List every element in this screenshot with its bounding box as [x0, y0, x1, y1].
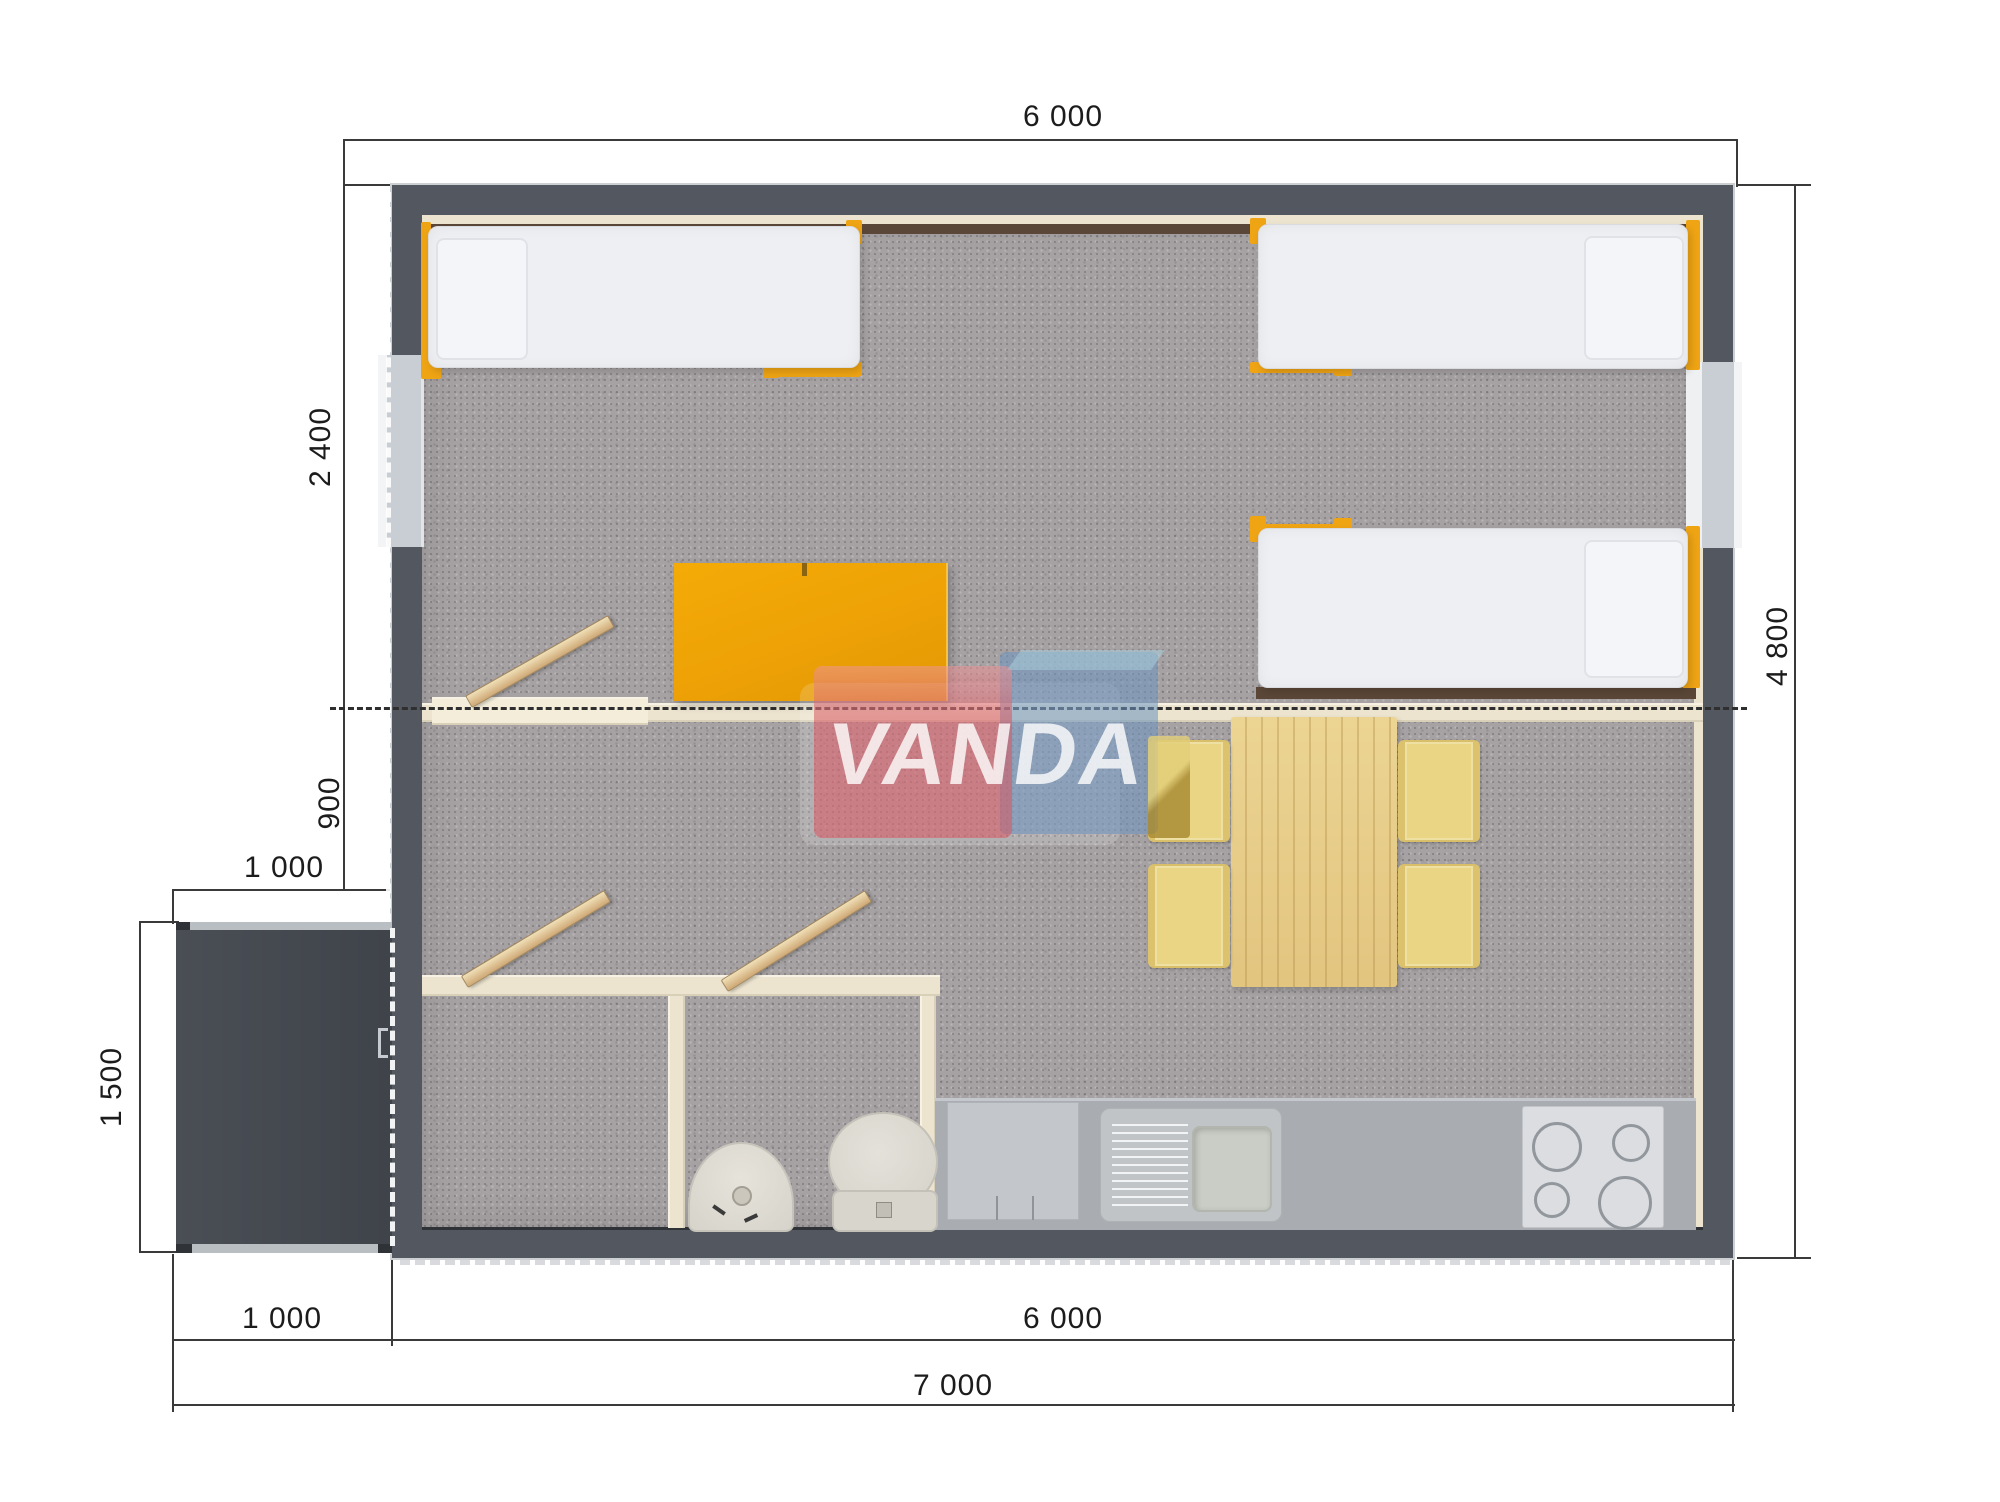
- dim-label-house-depth: 4 800: [1761, 606, 1795, 686]
- dim-ext-bottom-1733: [1732, 1260, 1734, 1412]
- watermark-blue-bevel: [1007, 650, 1165, 670]
- dim-ext-4800-top: [1737, 184, 1811, 186]
- kitchen-appliance-seam-2: [1032, 1196, 1034, 1220]
- dim-ext-porch-left: [172, 889, 174, 924]
- bed2-pillow: [1584, 236, 1684, 360]
- stove-burner-top-right: [1612, 1124, 1650, 1162]
- window-left: [387, 355, 424, 547]
- kitchen-appliance-seam-1: [996, 1196, 998, 1220]
- porch-step-bottom: [192, 1244, 378, 1253]
- bath-divider-wall: [668, 996, 685, 1228]
- bed3-frame-right: [1686, 526, 1700, 686]
- bed1-pillow: [436, 238, 528, 360]
- porch-step-bottom-cap-left: [176, 1244, 192, 1253]
- porch-deck: [176, 922, 392, 1252]
- dim-label-house-width-bottom: 6 000: [1023, 1302, 1103, 1336]
- bed2-frame-right: [1686, 220, 1700, 370]
- entrance-door-dashed: [390, 928, 395, 1246]
- entrance-door-handle: [378, 1028, 388, 1058]
- dim-line-1500: [139, 921, 141, 1253]
- dim-ext-top-right: [1736, 139, 1738, 187]
- dim-line-top: [344, 139, 1737, 141]
- porch-step-top: [190, 922, 392, 930]
- dim-line-1000-left: [172, 889, 396, 891]
- dining-table: [1231, 717, 1397, 987]
- dim-tick-1500-bottom: [139, 1251, 179, 1253]
- washbasin-faucet: [732, 1186, 752, 1206]
- stove-burner-bottom-right: [1598, 1176, 1652, 1230]
- dim-label-hall-depth: 900: [313, 776, 347, 829]
- bath-partition-wall: [422, 975, 940, 996]
- dim-line-4800: [1794, 184, 1796, 1259]
- bed3-pillow: [1584, 540, 1684, 678]
- dim-label-porch-width-bottom: 1 000: [242, 1302, 322, 1336]
- middle-wall-door-pocket: [432, 697, 648, 725]
- toilet-flush-button: [876, 1202, 892, 1218]
- kitchen-sink-drainboard: [1112, 1124, 1188, 1206]
- dim-ext-bottom-392: [391, 1260, 393, 1346]
- kitchen-appliance: [947, 1102, 1079, 1220]
- dim-label-porch-width-top: 1 000: [244, 851, 324, 885]
- dim-line-bottom-2: [172, 1404, 1735, 1406]
- dim-ext-4800-bottom: [1737, 1257, 1811, 1259]
- kitchen-sink-basin: [1192, 1126, 1272, 1212]
- dim-label-top-width: 6 000: [1023, 100, 1103, 134]
- siding-dashes-bottom-wall: [400, 1260, 1730, 1265]
- chair-top-right: [1398, 740, 1480, 842]
- stove-burner-bottom-left: [1534, 1182, 1570, 1218]
- chair-bottom-left: [1148, 864, 1230, 968]
- dim-label-porch-depth: 1 500: [95, 1047, 129, 1127]
- dim-tick-1500-top: [139, 921, 179, 923]
- dim-ext-bottom-173: [172, 1254, 174, 1412]
- dim-label-bedroom-depth: 2 400: [304, 407, 338, 487]
- watermark-logo-text: VANDA: [814, 698, 1160, 810]
- stove-burner-top-left: [1532, 1122, 1582, 1172]
- window-right: [1702, 362, 1734, 548]
- bed3-headboard-strip: [1256, 687, 1696, 699]
- wall-lining-top: [422, 215, 1703, 224]
- window-right-sill: [1734, 362, 1742, 548]
- floor-plan: 6 000 2 400 900 1 000 1 500 4 800 1 000 …: [0, 0, 2000, 1502]
- chair-bottom-right: [1398, 864, 1480, 968]
- dim-label-total-width: 7 000: [913, 1369, 993, 1403]
- dim-line-bottom-1: [172, 1339, 1735, 1341]
- window-right-recess: [1686, 362, 1702, 548]
- porch-step-top-cap: [176, 922, 190, 930]
- wardrobe-handle-notch: [802, 563, 807, 576]
- watermark-yellow-cube: [1148, 736, 1190, 838]
